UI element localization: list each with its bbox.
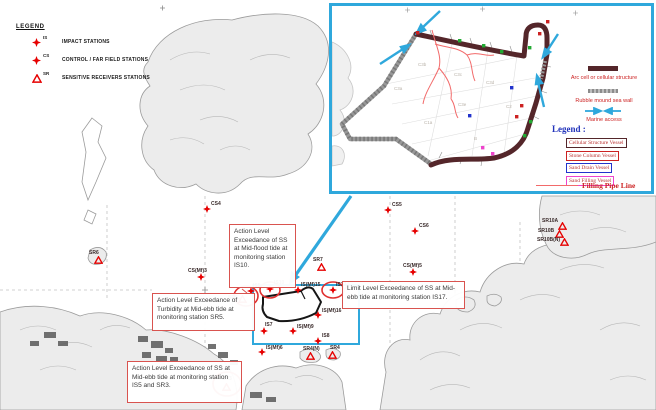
legend-item-impact: IS IMPACT STATIONS [8,36,198,48]
islet-sr6 [88,247,106,264]
pipe-line-label: Filling Pipe Line [582,181,635,190]
legend-label: SENSITIVE RECEIVERS STATIONS [62,75,150,81]
vessel-box-2: Sand Drain Vessel [566,163,612,173]
arc-cell-label: Arc cell or cellular structure [556,75,652,81]
vessel-marker [515,115,518,118]
vessel-marker [468,114,471,117]
vessel-marker [481,146,484,149]
islet-west-small [84,210,96,224]
vessel-marker [523,134,526,137]
legend-label: IMPACT STATIONS [62,39,110,45]
receiver-triangle-icon [32,74,42,83]
inset-coast-2 [332,146,344,166]
marine-access-label: Marine access [560,117,648,123]
inset-area-label: C3a [394,86,402,91]
sea-wall-label: Rubble mound sea wall [556,98,652,104]
inset-area-label: C3e [458,102,466,107]
annotation-action-ss-is10: Action Level Exceedance of SS at Mid-flo… [229,224,296,288]
legend-label: CONTROL / FAR FIELD STATIONS [62,57,148,63]
land-southeast [380,240,656,410]
vessel-marker [416,31,419,34]
impact-star-icon [32,38,41,47]
vessel-marker [528,46,531,49]
inset-area-label: C3d [486,80,494,85]
annotation-action-ss-is5-sr3: Action Level Exceedance of SS at Mid-ebb… [127,361,242,403]
vessel-marker [520,104,523,107]
vessel-marker [482,44,485,47]
legend-code: IS [43,35,47,40]
vessel-marker [538,32,541,35]
pipe-line-legend: Filling Pipe Line [536,181,635,190]
inset-area-label: C3b [418,62,426,67]
pipe-line-swatch [536,185,578,186]
marine-access-arrows-icon [584,107,622,115]
islet-west [82,118,106,200]
control-star-icon [32,56,41,65]
inset-area-label: C3c [454,72,462,77]
inset-area-label: C2 [506,104,512,109]
rubble-mound-seawall [342,34,431,164]
construction-inset: C3bC3cC3dC3aC3eC2C1aB Arc cell or cellul… [329,3,654,194]
vessel-marker [510,86,513,89]
islet-sr4 [326,348,340,360]
islet-sr4n [300,349,321,363]
sea-wall-swatch [588,89,618,93]
monitoring-map: CS4CS5CS6CS(Mf)3CS(Mf)5SR6SR7IS10IS5SR5I… [0,0,656,410]
legend-title: LEGEND [16,24,198,30]
vessel-marker [546,20,549,23]
inset-area-label: B [474,136,477,141]
map-legend: LEGEND IS IMPACT STATIONS CS CONTROL / F… [8,24,198,84]
legend-item-control: CS CONTROL / FAR FIELD STATIONS [8,54,198,66]
vessel-box-0: Cellular Structure Vessel [566,138,627,148]
inset-area-label: C1a [424,120,432,125]
vessel-marker [500,50,503,53]
legend-code: SR [43,71,49,76]
inset-legend-title: Legend : [552,124,586,134]
rubble-mound-seawall-texture [342,34,431,164]
legend-item-receiver: SR SENSITIVE RECEIVERS STATIONS [8,72,198,84]
island-south-center [242,365,346,410]
vessel-marker [529,120,532,123]
vessel-marker [458,39,461,42]
legend-code: CS [43,53,49,58]
arc-cell-swatch [588,66,618,71]
vessel-marker [491,152,494,155]
annotation-action-turbidity-sr5: Action Level Exceedance of Turbidity at … [152,293,255,331]
vessel-box-1: Stone Column Vessel [566,151,619,161]
annotation-limit-ss-is17: Limit Level Exceedance of SS at Mid-ebb … [342,281,465,309]
